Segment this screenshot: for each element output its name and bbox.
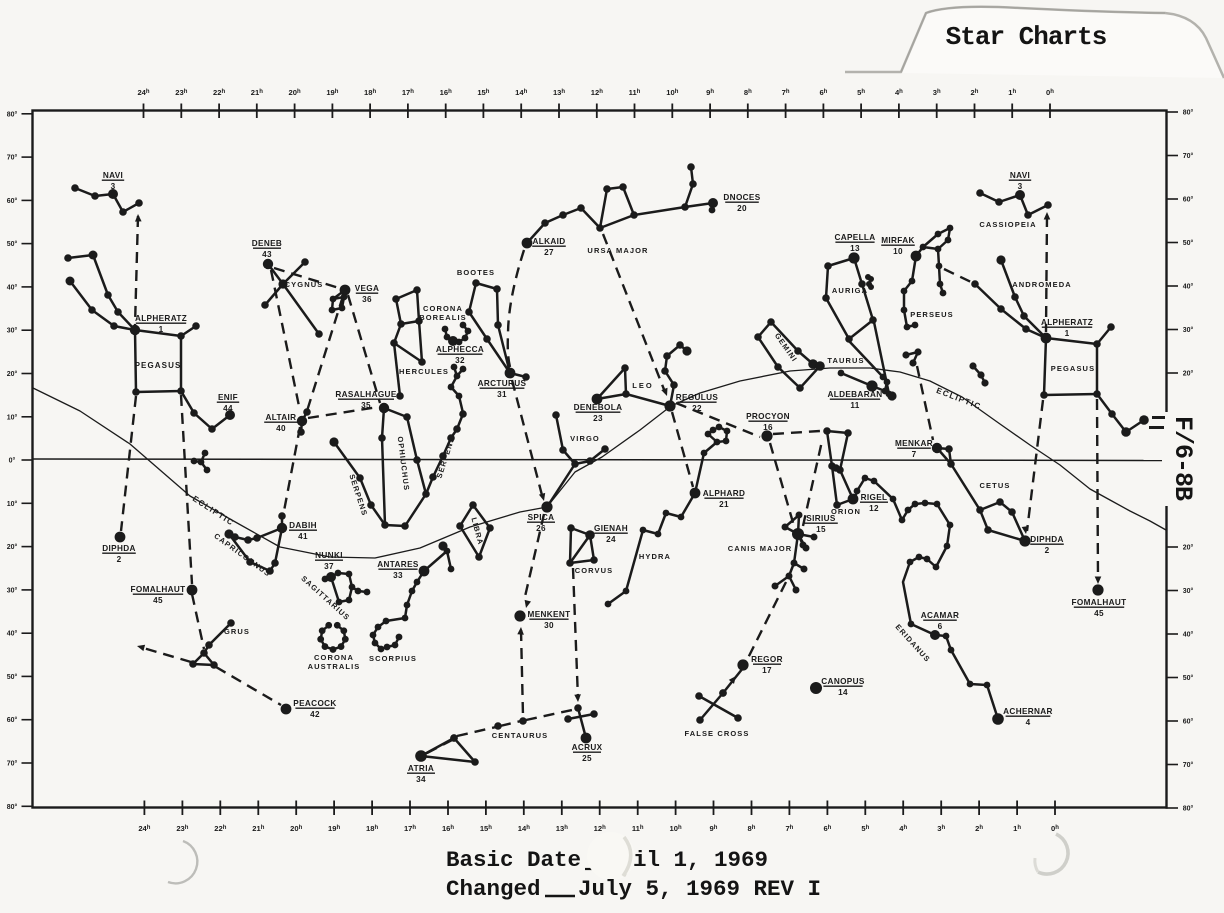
svg-text:CORONA: CORONA: [423, 304, 463, 313]
svg-text:37: 37: [324, 562, 334, 571]
svg-text:ALDEBARAN: ALDEBARAN: [827, 390, 882, 399]
svg-text:BOREALIS: BOREALIS: [419, 313, 467, 322]
svg-text:14: 14: [838, 688, 848, 697]
svg-text:Changed: Changed: [446, 876, 541, 902]
svg-text:VIRGO: VIRGO: [570, 434, 600, 443]
svg-text:CORVUS: CORVUS: [575, 566, 614, 575]
svg-text:URSA MAJOR: URSA MAJOR: [587, 246, 648, 255]
svg-text:45: 45: [1094, 609, 1104, 618]
svg-text:ARCTURUS: ARCTURUS: [478, 379, 527, 388]
svg-text:REGOR: REGOR: [751, 655, 783, 664]
svg-text:32: 32: [455, 356, 465, 365]
svg-text:2: 2: [1045, 546, 1050, 555]
svg-text:12: 12: [869, 504, 879, 513]
svg-text:44: 44: [223, 404, 233, 413]
svg-text:36: 36: [362, 295, 372, 304]
svg-text:ATRIA: ATRIA: [408, 764, 434, 773]
svg-text:ENIF: ENIF: [218, 393, 238, 402]
svg-text:MENKAR: MENKAR: [895, 439, 933, 448]
svg-text:70°: 70°: [7, 154, 18, 162]
svg-text:30°: 30°: [1183, 326, 1194, 334]
svg-text:60°: 60°: [1183, 196, 1194, 204]
svg-text:CANIS MAJOR: CANIS MAJOR: [728, 544, 793, 553]
svg-text:23: 23: [593, 414, 603, 423]
svg-text:6: 6: [938, 622, 943, 631]
svg-text:43: 43: [262, 250, 272, 259]
svg-text:DNOCES: DNOCES: [723, 193, 760, 202]
svg-text:41: 41: [298, 532, 308, 541]
svg-text:PEACOCK: PEACOCK: [293, 699, 336, 708]
svg-text:FOMALHAUT: FOMALHAUT: [1072, 598, 1127, 607]
svg-text:80°: 80°: [7, 110, 18, 118]
svg-text:20°: 20°: [1183, 544, 1194, 552]
svg-text:60°: 60°: [7, 197, 18, 205]
svg-text:50°: 50°: [7, 240, 18, 248]
svg-text:20: 20: [737, 204, 747, 213]
svg-text:PEGASUS: PEGASUS: [1051, 364, 1095, 373]
svg-text:50°: 50°: [1183, 674, 1194, 682]
svg-text:MIRFAK: MIRFAK: [881, 236, 914, 245]
svg-text:20°: 20°: [7, 370, 18, 378]
svg-text:40°: 40°: [1183, 283, 1194, 291]
svg-text:ACRUX: ACRUX: [572, 743, 603, 752]
svg-text:15: 15: [816, 525, 826, 534]
svg-text:ALPHECCA: ALPHECCA: [436, 345, 484, 354]
svg-text:45: 45: [153, 596, 163, 605]
svg-text:FOMALHAUT: FOMALHAUT: [131, 585, 186, 594]
svg-text:ACAMAR: ACAMAR: [921, 611, 959, 620]
svg-text:F/6-8B: F/6-8B: [1168, 416, 1197, 501]
svg-text:13: 13: [850, 244, 860, 253]
svg-text:80°: 80°: [7, 803, 18, 811]
svg-text:ANDROMEDA: ANDROMEDA: [1012, 280, 1071, 289]
svg-text:ALPHERATZ: ALPHERATZ: [1041, 318, 1093, 327]
svg-text:80°: 80°: [1183, 109, 1194, 117]
svg-text:PROCYON: PROCYON: [746, 412, 790, 421]
svg-text:il 1, 1969: il 1, 1969: [633, 847, 768, 873]
svg-text:CETUS: CETUS: [980, 481, 1011, 490]
svg-text:DENEB: DENEB: [252, 239, 282, 248]
svg-text:33: 33: [393, 571, 403, 580]
svg-text:50°: 50°: [1183, 239, 1194, 247]
svg-text:DIPHDA: DIPHDA: [102, 544, 136, 553]
svg-text:30: 30: [544, 621, 554, 630]
svg-text:42: 42: [310, 710, 320, 719]
svg-text:GIENAH: GIENAH: [594, 524, 628, 533]
svg-text:RASALHAGUE: RASALHAGUE: [335, 390, 396, 399]
svg-text:VEGA: VEGA: [355, 284, 380, 293]
svg-text:25: 25: [582, 754, 592, 763]
svg-text:31: 31: [497, 390, 507, 399]
svg-text:PEGASUS: PEGASUS: [135, 361, 182, 370]
svg-text:BOOTES: BOOTES: [457, 268, 495, 277]
svg-text:50°: 50°: [7, 673, 18, 681]
svg-text:LEO: LEO: [632, 381, 653, 390]
svg-text:ALPHERATZ: ALPHERATZ: [135, 314, 187, 323]
svg-text:40°: 40°: [1183, 631, 1194, 639]
svg-text:NAVI: NAVI: [103, 171, 123, 180]
svg-text:11: 11: [850, 401, 859, 410]
svg-text:17: 17: [762, 666, 772, 675]
svg-text:10°: 10°: [7, 413, 18, 421]
svg-text:RIGEL: RIGEL: [861, 493, 888, 502]
svg-text:AURIGA: AURIGA: [832, 286, 868, 295]
svg-text:PERSEUS: PERSEUS: [910, 310, 954, 319]
svg-text:NUNKI: NUNKI: [315, 551, 343, 560]
svg-text:30°: 30°: [1183, 587, 1194, 595]
svg-text:NAVI: NAVI: [1010, 171, 1030, 180]
svg-text:DIPHDA: DIPHDA: [1030, 535, 1064, 544]
svg-text:ALPHARD: ALPHARD: [703, 489, 745, 498]
svg-text:HERCULES: HERCULES: [399, 367, 449, 376]
svg-text:10°: 10°: [7, 500, 18, 508]
svg-text:20°: 20°: [1183, 370, 1194, 378]
svg-text:16: 16: [763, 423, 773, 432]
svg-text:1: 1: [159, 325, 164, 334]
svg-text:July 5, 1969 REV I: July 5, 1969 REV I: [578, 876, 821, 902]
svg-text:SPICA: SPICA: [528, 513, 555, 522]
svg-text:CASSIOPEIA: CASSIOPEIA: [979, 220, 1036, 229]
svg-text:40°: 40°: [7, 283, 18, 291]
svg-text:60°: 60°: [7, 716, 18, 724]
svg-text:30°: 30°: [7, 586, 18, 594]
svg-text:70°: 70°: [7, 760, 18, 768]
svg-text:SCORPIUS: SCORPIUS: [369, 654, 417, 663]
svg-text:34: 34: [416, 775, 426, 784]
svg-text:2: 2: [117, 555, 122, 564]
svg-text:FALSE CROSS: FALSE CROSS: [684, 729, 749, 738]
svg-text:3: 3: [1018, 182, 1023, 191]
svg-text:DENEBOLA: DENEBOLA: [574, 403, 623, 412]
svg-text:40: 40: [276, 424, 286, 433]
svg-text:CORONA: CORONA: [314, 653, 354, 662]
svg-text:70°: 70°: [1183, 152, 1194, 160]
svg-text:7: 7: [912, 450, 917, 459]
svg-text:CAPELLA: CAPELLA: [834, 233, 875, 242]
svg-text:27: 27: [544, 248, 554, 257]
svg-text:ORION: ORION: [831, 507, 861, 516]
svg-text:AUSTRALIS: AUSTRALIS: [308, 662, 361, 671]
svg-text:GRUS: GRUS: [224, 627, 250, 636]
svg-text:1: 1: [1065, 329, 1070, 338]
svg-text:CANOPUS: CANOPUS: [821, 677, 865, 686]
svg-text:Basic Date: Basic Date: [446, 847, 581, 873]
svg-text:24: 24: [606, 535, 616, 544]
svg-text:TAURUS: TAURUS: [827, 356, 864, 365]
svg-text:4: 4: [1026, 718, 1031, 727]
svg-text:26: 26: [536, 524, 546, 533]
svg-text:21: 21: [719, 500, 729, 509]
svg-text:10: 10: [893, 247, 903, 256]
svg-text:20°: 20°: [7, 543, 18, 551]
svg-text:60°: 60°: [1183, 718, 1194, 726]
svg-text:ANTARES: ANTARES: [377, 560, 419, 569]
svg-text:ALTAIR: ALTAIR: [266, 413, 297, 422]
svg-text:30°: 30°: [7, 327, 18, 335]
svg-text:35: 35: [361, 401, 371, 410]
svg-text:MENKENT: MENKENT: [528, 610, 571, 619]
svg-text:80°: 80°: [1183, 805, 1194, 813]
svg-text:0°: 0°: [9, 457, 16, 465]
svg-text:40°: 40°: [7, 630, 18, 638]
svg-text:3: 3: [111, 182, 116, 191]
svg-text:CENTAURUS: CENTAURUS: [492, 731, 548, 740]
svg-text:DABIH: DABIH: [289, 521, 317, 530]
svg-text:ACHERNAR: ACHERNAR: [1003, 707, 1053, 716]
svg-text:HYDRA: HYDRA: [639, 552, 671, 561]
svg-text:ALKAID: ALKAID: [532, 237, 565, 246]
svg-text:Star Charts: Star Charts: [946, 22, 1107, 52]
svg-text:REGULUS: REGULUS: [676, 393, 719, 402]
svg-text:70°: 70°: [1183, 761, 1194, 769]
